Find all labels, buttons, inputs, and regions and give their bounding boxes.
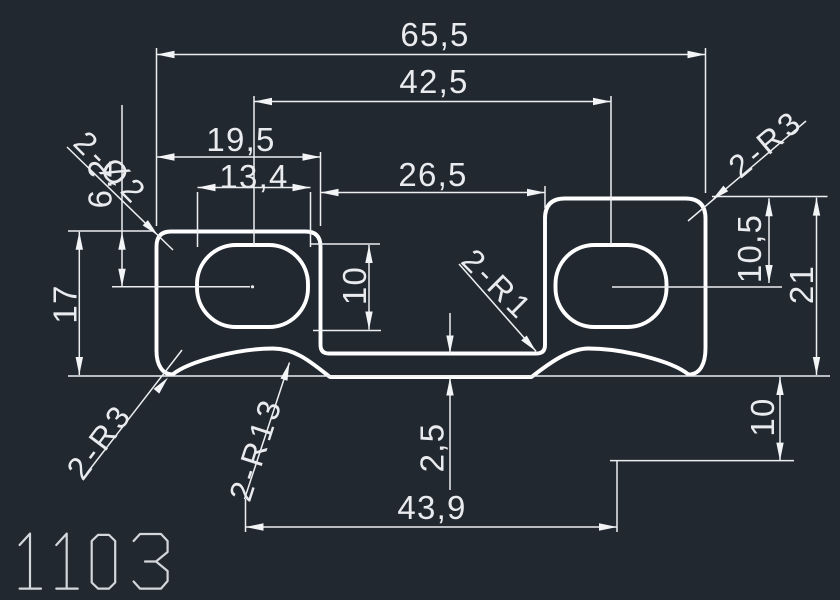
svg-text:10: 10 bbox=[744, 397, 781, 436]
svg-text:2,5: 2,5 bbox=[414, 423, 451, 473]
svg-text:42,5: 42,5 bbox=[399, 63, 468, 100]
svg-text:13,4: 13,4 bbox=[219, 158, 288, 195]
svg-text:19,5: 19,5 bbox=[206, 121, 275, 158]
svg-text:10: 10 bbox=[336, 266, 373, 305]
svg-text:17: 17 bbox=[47, 284, 84, 323]
svg-text:21: 21 bbox=[783, 265, 820, 304]
svg-text:65,5: 65,5 bbox=[400, 16, 469, 53]
svg-text:26,5: 26,5 bbox=[398, 156, 467, 193]
svg-text:10,5: 10,5 bbox=[731, 214, 768, 283]
svg-text:43,9: 43,9 bbox=[397, 489, 466, 526]
